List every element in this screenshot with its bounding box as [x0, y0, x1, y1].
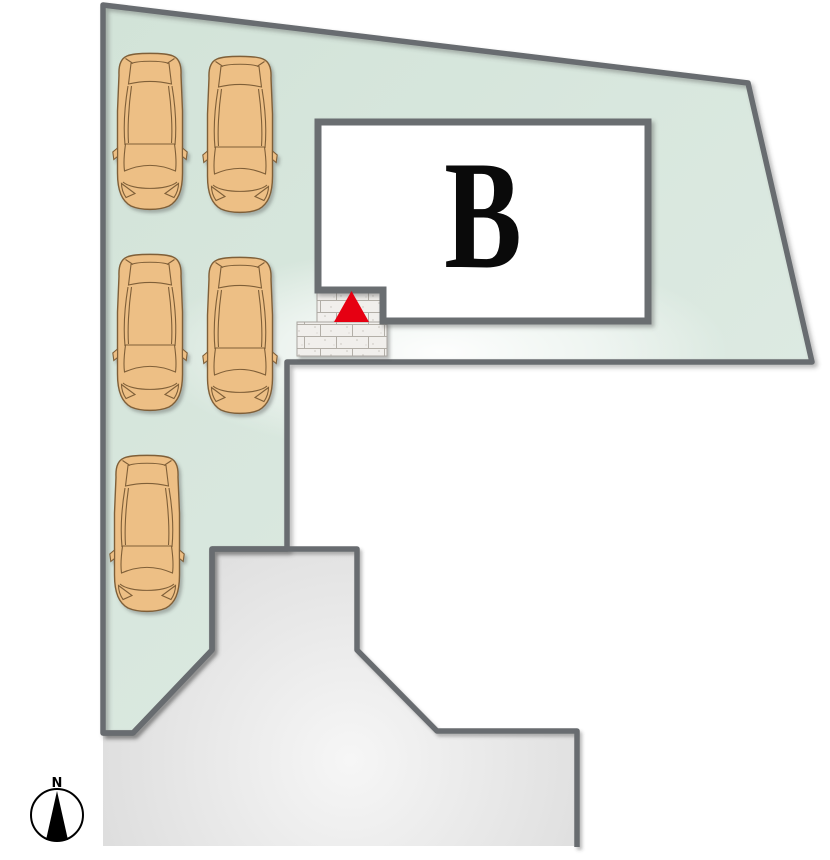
building-b: B — [318, 122, 648, 321]
building-label-wrap: B — [444, 129, 522, 301]
site-plan-page: B N — [0, 0, 830, 860]
compass-north-label: N — [52, 776, 63, 791]
car-4-icon — [203, 257, 277, 413]
site-plan: B N — [0, 0, 830, 860]
car-2-icon — [203, 56, 277, 212]
car-3-icon — [113, 254, 187, 410]
compass-rose-icon: N — [31, 776, 83, 841]
entrance-step-lower — [297, 322, 387, 356]
car-5-icon — [110, 455, 184, 611]
building-label: B — [444, 129, 522, 301]
car-1-icon — [113, 53, 187, 209]
